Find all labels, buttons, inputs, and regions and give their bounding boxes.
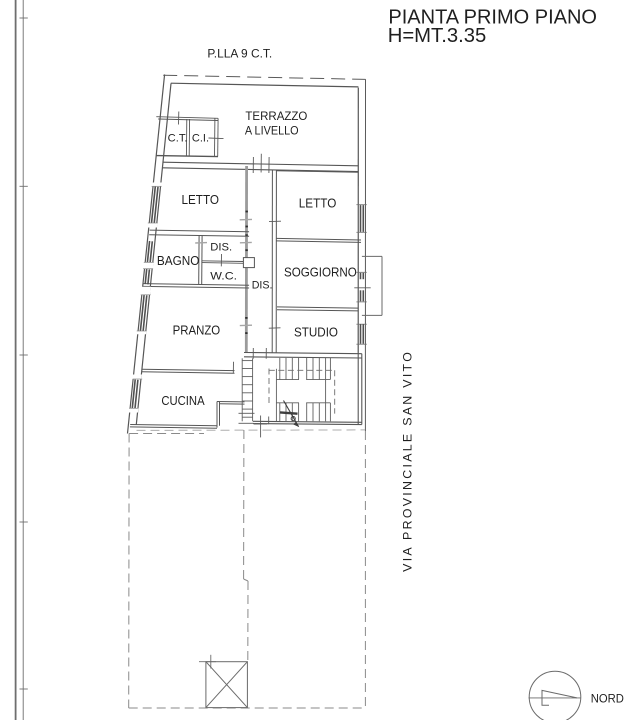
svg-text:C.T.: C.T. (168, 133, 188, 145)
svg-text:W.C.: W.C. (210, 271, 237, 283)
svg-text:H=MT.3.35: H=MT.3.35 (388, 25, 487, 47)
svg-text:STUDIO: STUDIO (294, 325, 338, 340)
svg-text:NORD: NORD (591, 691, 624, 705)
svg-text:LETTO: LETTO (299, 196, 337, 211)
svg-text:PRANZO: PRANZO (173, 323, 221, 338)
svg-text:P.LLA 9 C.T.: P.LLA 9 C.T. (207, 46, 272, 60)
svg-text:DIS.: DIS. (252, 279, 273, 291)
svg-text:DIS.: DIS. (210, 241, 232, 253)
svg-text:C.I.: C.I. (192, 133, 209, 145)
svg-text:TERRAZZO: TERRAZZO (245, 109, 307, 123)
svg-text:CUCINA: CUCINA (161, 393, 204, 408)
svg-text:BAGNO: BAGNO (157, 253, 200, 268)
svg-text:A LIVELLO: A LIVELLO (245, 124, 299, 138)
svg-text:VIA PROVINCIALE SAN VITO: VIA PROVINCIALE SAN VITO (401, 352, 415, 572)
svg-text:LETTO: LETTO (182, 192, 220, 207)
svg-text:SOGGIORNO: SOGGIORNO (284, 264, 357, 279)
